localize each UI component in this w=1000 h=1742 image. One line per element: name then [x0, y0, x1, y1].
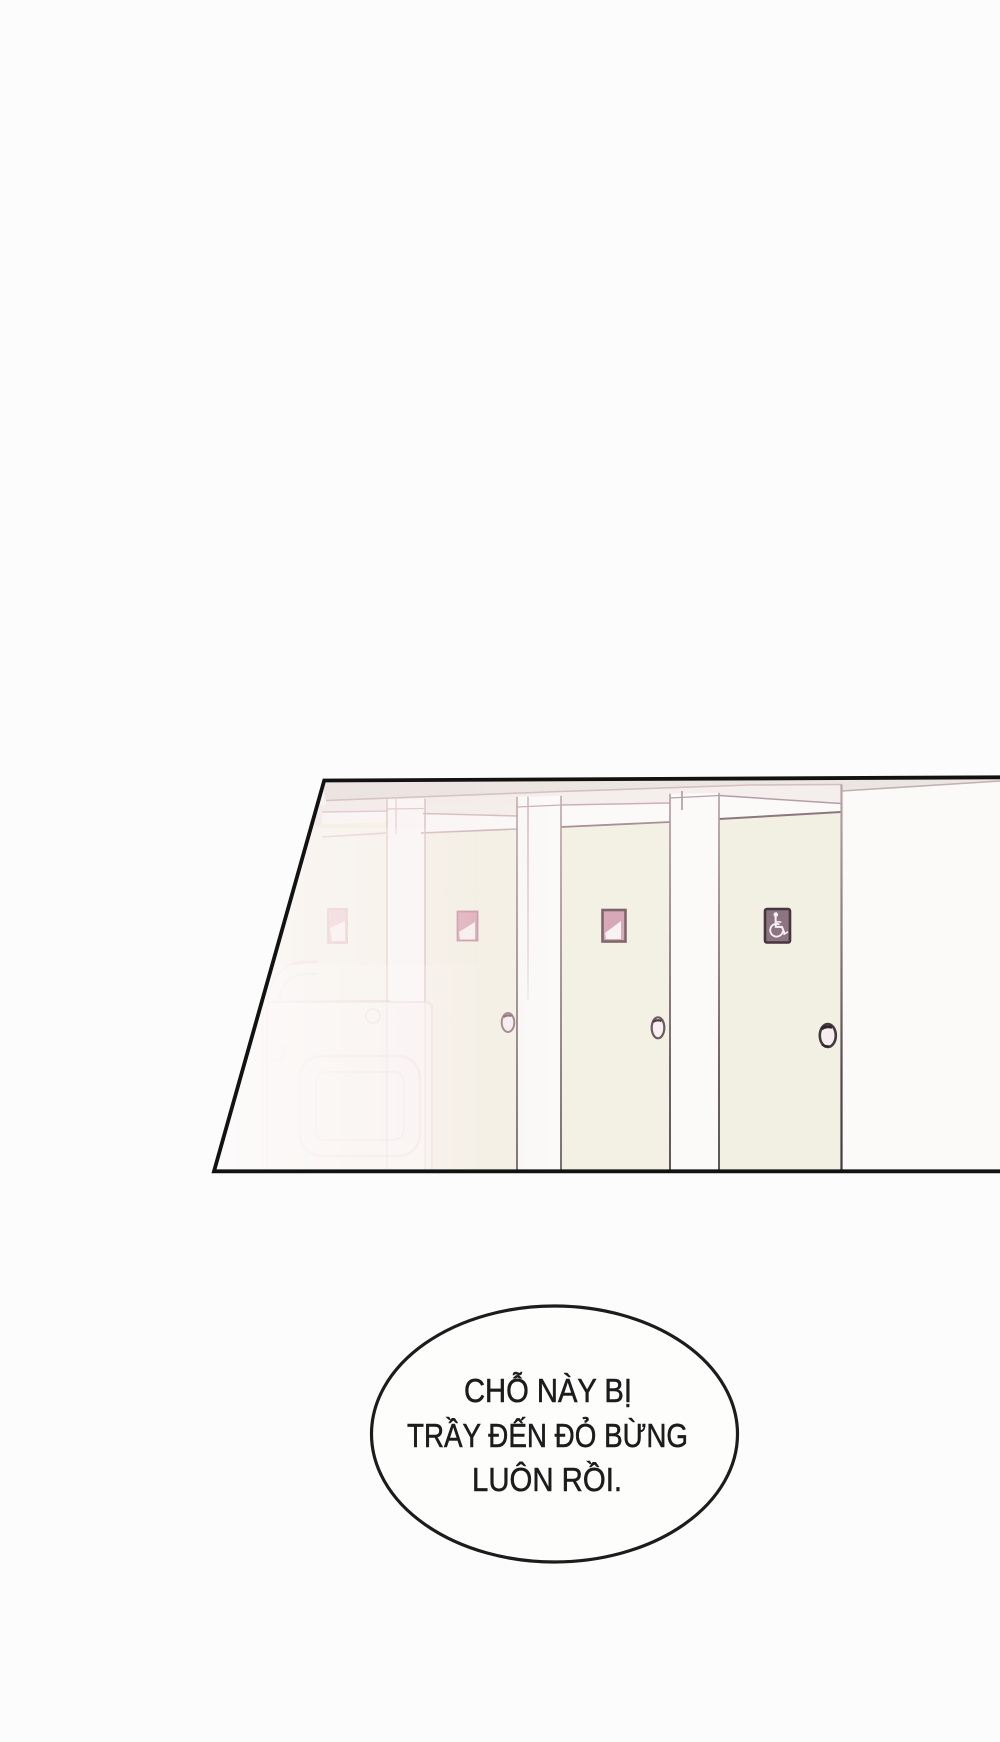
- svg-text:TRẦY ĐẾN ĐỎ BỪNG: TRẦY ĐẾN ĐỎ BỪNG: [407, 1417, 688, 1455]
- svg-text:CHỖ NÀY BỊ: CHỖ NÀY BỊ: [464, 1372, 632, 1410]
- svg-text:LUÔN RỒI.: LUÔN RỒI.: [472, 1461, 622, 1499]
